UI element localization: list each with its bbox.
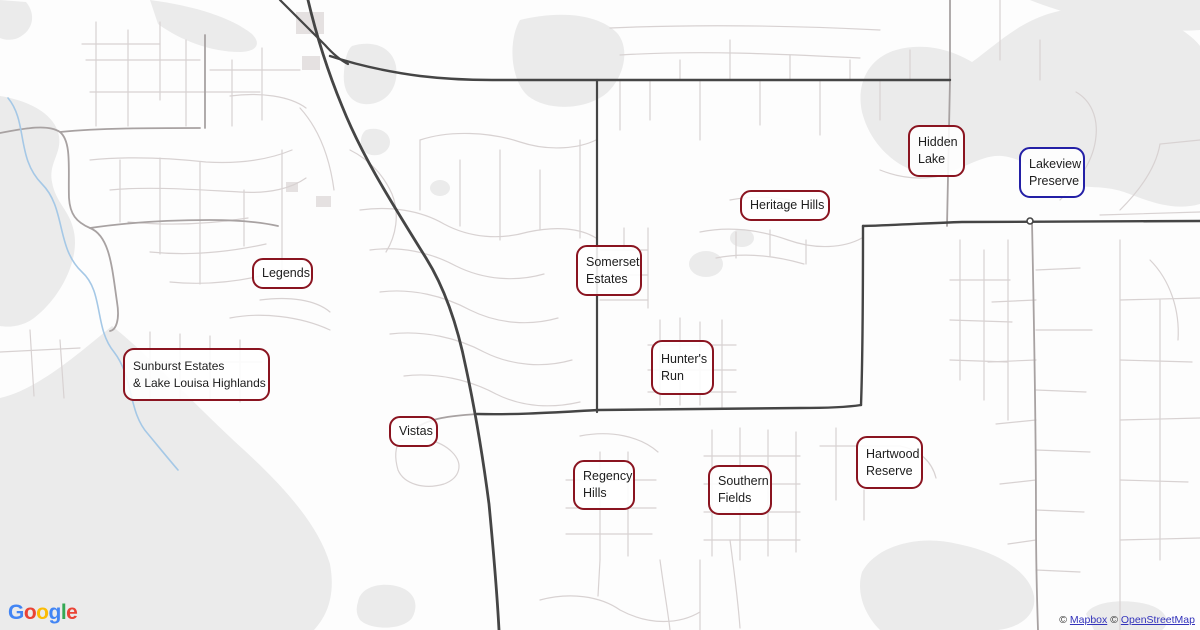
- neighborhood-badge-vistas[interactable]: Vistas: [389, 416, 438, 447]
- badge-label: Lake: [918, 151, 955, 168]
- badge-label: Run: [661, 368, 704, 385]
- neighborhood-badge-southern-fields[interactable]: Southern Fields: [708, 465, 772, 515]
- map-attribution: © Mapbox © OpenStreetMap: [1059, 614, 1195, 626]
- badge-label: Southern: [718, 473, 762, 490]
- badge-label: Hidden: [918, 134, 955, 151]
- badge-label: Reserve: [866, 463, 913, 480]
- neighborhood-badge-legends[interactable]: Legends: [252, 258, 313, 289]
- copyright-symbol: ©: [1059, 614, 1067, 626]
- google-logo[interactable]: Google: [8, 601, 77, 625]
- badge-label: Lakeview: [1029, 156, 1075, 173]
- google-letter: g: [49, 601, 61, 624]
- openstreetmap-attribution-link[interactable]: OpenStreetMap: [1121, 614, 1195, 626]
- neighborhood-badge-heritage-hills[interactable]: Heritage Hills: [740, 190, 830, 221]
- neighborhood-badge-hunters-run[interactable]: Hunter's Run: [651, 340, 714, 395]
- badge-label: Hunter's: [661, 351, 704, 368]
- neighborhood-badge-hidden-lake[interactable]: Hidden Lake: [908, 125, 965, 177]
- neighborhood-badge-somerset-estates[interactable]: Somerset Estates: [576, 245, 642, 296]
- badge-label: Regency: [583, 468, 625, 485]
- mapbox-attribution-link[interactable]: Mapbox: [1070, 614, 1107, 626]
- badge-label: Hills: [583, 485, 625, 502]
- badge-label: Somerset: [586, 254, 632, 271]
- badge-label: & Lake Louisa Highlands: [133, 375, 260, 392]
- map-canvas[interactable]: Hidden Lake Lakeview Preserve Heritage H…: [0, 0, 1200, 630]
- badge-label: Preserve: [1029, 173, 1075, 190]
- badge-label: Hartwood: [866, 446, 913, 463]
- copyright-symbol: ©: [1110, 614, 1118, 626]
- neighborhood-badge-regency-hills[interactable]: Regency Hills: [573, 460, 635, 510]
- neighborhood-badge-sunburst-estates-lake-louisa-highlands[interactable]: Sunburst Estates & Lake Louisa Highlands: [123, 348, 270, 401]
- neighborhood-badge-hartwood-reserve[interactable]: Hartwood Reserve: [856, 436, 923, 489]
- building-footprints: [286, 12, 331, 207]
- google-letter: o: [24, 601, 36, 624]
- badge-label: Legends: [262, 265, 303, 282]
- google-letter: G: [8, 601, 24, 624]
- neighborhood-badge-lakeview-preserve[interactable]: Lakeview Preserve: [1019, 147, 1085, 198]
- badge-label: Heritage Hills: [750, 197, 820, 214]
- badge-label: Estates: [586, 271, 632, 288]
- badge-label: Sunburst Estates: [133, 358, 260, 375]
- google-letter: o: [36, 601, 48, 624]
- badge-label: Vistas: [399, 423, 428, 440]
- google-letter: e: [66, 601, 77, 624]
- basemap-tiles: [0, 0, 1200, 630]
- badge-label: Fields: [718, 490, 762, 507]
